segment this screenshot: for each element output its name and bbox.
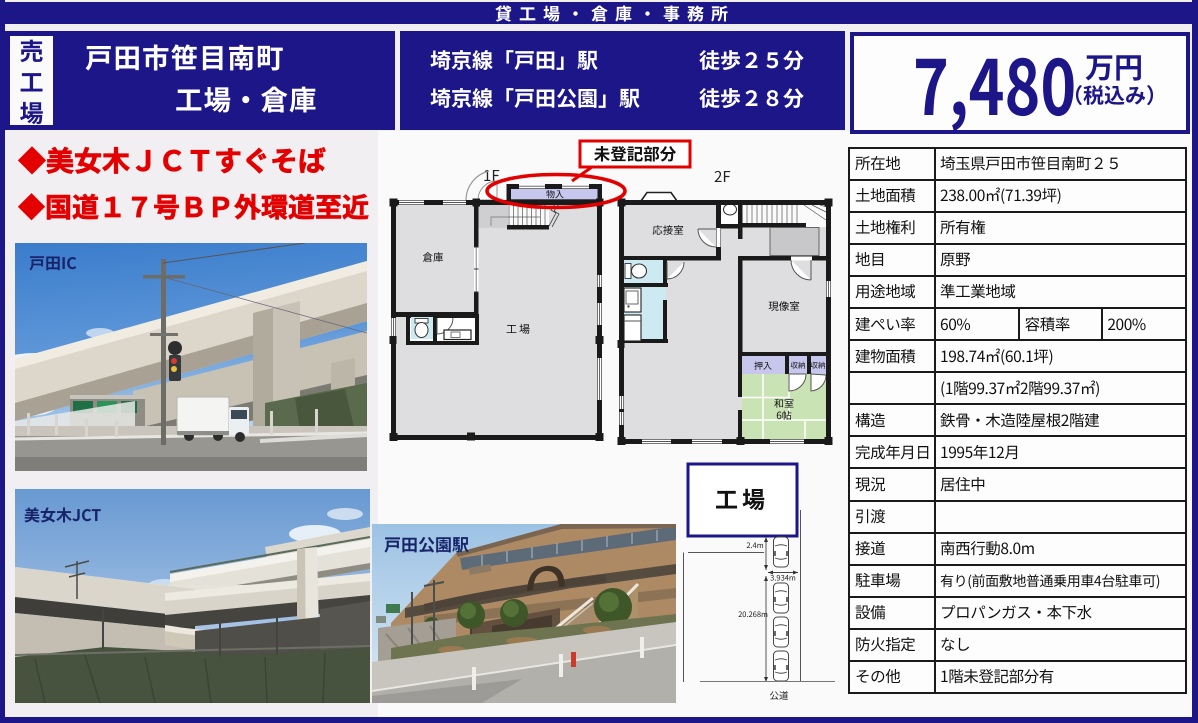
svg-text:現像室: 現像室 bbox=[768, 299, 800, 314]
svg-text:工場: 工場 bbox=[715, 481, 769, 515]
svg-text:収納: 収納 bbox=[811, 360, 826, 371]
svg-text:応接室: 応接室 bbox=[652, 223, 684, 238]
svg-text:物入: 物入 bbox=[546, 188, 564, 201]
svg-text:工場: 工場 bbox=[506, 321, 532, 337]
svg-text:倉庫: 倉庫 bbox=[423, 250, 444, 265]
svg-text:2.4m: 2.4m bbox=[746, 540, 763, 551]
svg-text:公道: 公道 bbox=[769, 688, 789, 702]
svg-text:押入: 押入 bbox=[754, 359, 772, 372]
svg-text:未登記部分: 未登記部分 bbox=[594, 141, 677, 165]
svg-text:3.934m: 3.934m bbox=[770, 573, 796, 584]
svg-text:6帖: 6帖 bbox=[776, 407, 792, 422]
svg-text:2F: 2F bbox=[714, 166, 731, 187]
svg-text:収納: 収納 bbox=[791, 360, 806, 371]
svg-text:20.268m: 20.268m bbox=[738, 609, 768, 620]
